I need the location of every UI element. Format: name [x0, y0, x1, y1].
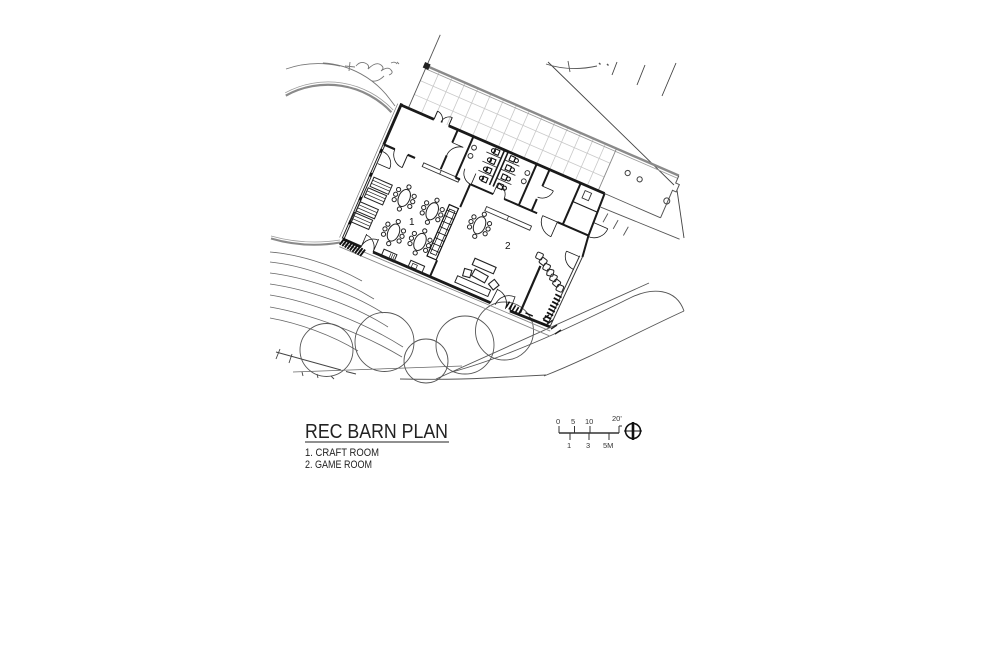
svg-text:1: 1: [567, 441, 571, 450]
svg-text:REC BARN PLAN: REC BARN PLAN: [305, 421, 448, 443]
svg-text:10: 10: [585, 417, 593, 426]
svg-text:5M: 5M: [603, 441, 613, 450]
svg-text:20': 20': [612, 414, 622, 423]
svg-text:1. CRAFT ROOM: 1. CRAFT ROOM: [305, 447, 379, 459]
svg-text:0: 0: [556, 417, 560, 426]
svg-text:2. GAME ROOM: 2. GAME ROOM: [305, 459, 372, 471]
svg-text:5: 5: [571, 417, 575, 426]
svg-text:1: 1: [409, 217, 415, 228]
svg-text:3: 3: [586, 441, 590, 450]
svg-text:2: 2: [505, 241, 511, 252]
